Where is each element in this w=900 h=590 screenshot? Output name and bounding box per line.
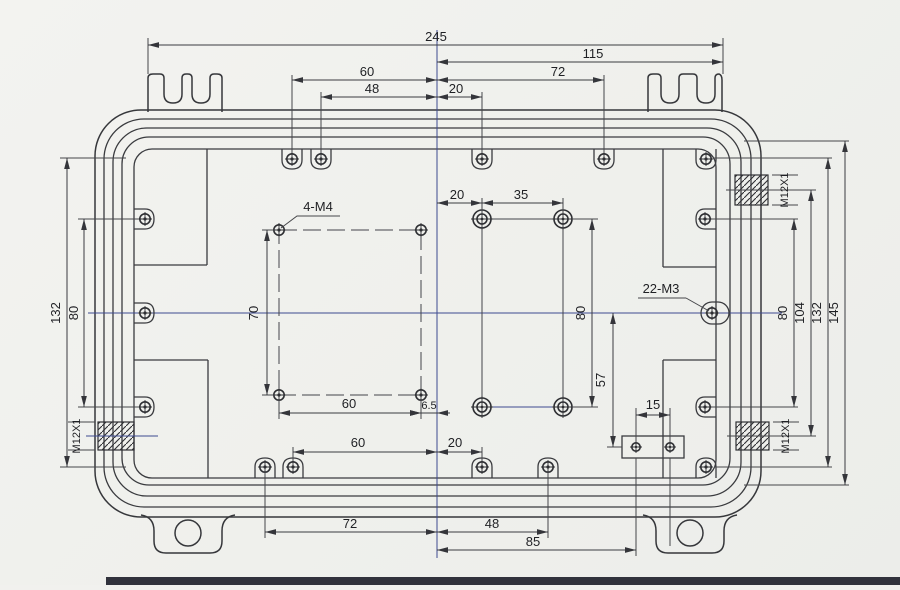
mounting-hole-left — [175, 520, 201, 546]
dim-57: 57 — [593, 373, 608, 387]
dim-top-60: 60 — [360, 64, 374, 79]
dim-pattern-right-80: 80 — [573, 306, 588, 320]
label-gland-right-top: M12X1 — [779, 173, 791, 208]
hinge-knuckle-left — [148, 74, 222, 112]
enclosure-engineering-drawing: 245 115 60 72 48 20 20 35 80 4-M4 70 60 … — [0, 0, 900, 585]
dim-bottom-48: 48 — [485, 516, 499, 531]
dim-top-115: 115 — [583, 46, 604, 61]
dim-top-48: 48 — [365, 81, 379, 96]
label-gland-right-bottom: M12X1 — [780, 419, 792, 454]
dim-pattern-left-70: 70 — [246, 306, 261, 320]
dim-top-20: 20 — [449, 81, 463, 96]
terminal-block — [622, 436, 684, 458]
dim-pattern-left-60: 60 — [342, 396, 356, 411]
dim-overall-width: 245 — [425, 29, 447, 44]
leader-lines — [281, 216, 709, 311]
dim-right-104: 104 — [792, 302, 807, 324]
dim-top-72: 72 — [551, 64, 565, 79]
dim-pattern-right-20: 20 — [450, 187, 464, 202]
dim-left-80: 80 — [66, 306, 81, 320]
leader-22-M3 — [638, 298, 709, 311]
dim-right-145: 145 — [826, 302, 841, 324]
dim-bottom-72: 72 — [343, 516, 357, 531]
mounting-hole-right — [677, 520, 703, 546]
dim-right-80: 80 — [775, 306, 790, 320]
dimension-lines — [67, 45, 845, 550]
dim-bottom-85: 85 — [526, 534, 540, 549]
dim-bottom-20: 20 — [448, 435, 462, 450]
label-22-M3: 22-M3 — [643, 281, 680, 296]
dim-bottom-60: 60 — [351, 435, 365, 450]
label-gland-left: M12X1 — [71, 419, 83, 454]
leader-4-M4 — [281, 216, 340, 228]
hinge-knuckle-right — [648, 74, 722, 112]
label-4-M4: 4-M4 — [303, 199, 333, 214]
dim-offset-6-5: 6.5 — [421, 400, 436, 412]
scan-edge-artifact — [106, 577, 900, 585]
dim-pattern-right-35: 35 — [514, 187, 528, 202]
dim-left-132: 132 — [48, 302, 63, 324]
mounting-ears — [141, 515, 737, 553]
scanned-drawing-page: 245 115 60 72 48 20 20 35 80 4-M4 70 60 … — [0, 0, 900, 585]
dim-right-132: 132 — [809, 302, 824, 324]
dim-15: 15 — [646, 397, 660, 412]
